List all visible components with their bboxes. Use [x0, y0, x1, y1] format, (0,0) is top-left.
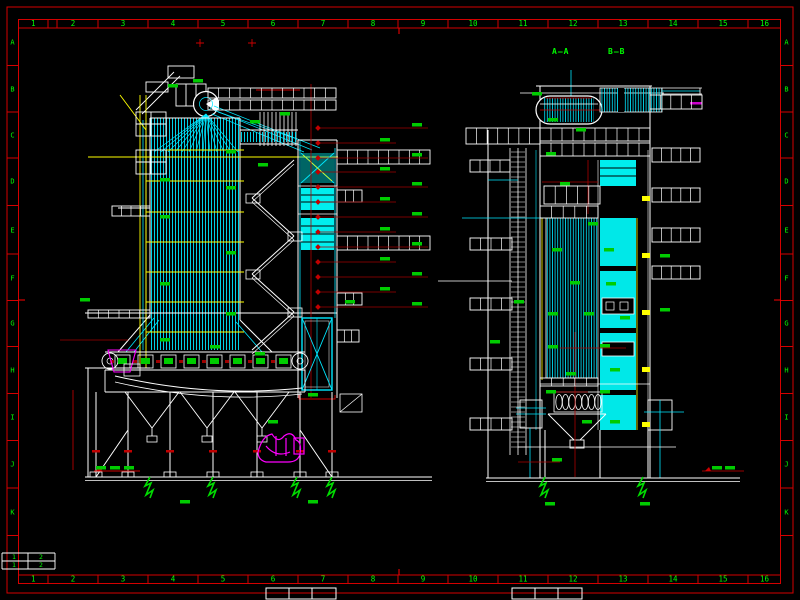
svg-text:2: 2: [71, 19, 76, 28]
support-columns: [90, 392, 338, 477]
convection-shaft: [298, 84, 337, 398]
svg-text:11: 11: [518, 19, 527, 28]
svg-text:6: 6: [271, 575, 276, 584]
loop-ellipses: [556, 395, 601, 410]
right-section-view: [438, 70, 744, 482]
svg-text:3: 3: [121, 19, 126, 28]
svg-text:C: C: [10, 132, 14, 140]
svg-text:8: 8: [371, 575, 376, 584]
centerline-marks: [196, 39, 256, 47]
svg-text:J: J: [10, 461, 14, 469]
svg-text:11: 11: [518, 575, 527, 584]
svg-text:7: 7: [321, 19, 326, 28]
steam-drum: [194, 92, 219, 117]
svg-text:13: 13: [618, 575, 627, 584]
corner-zone-table: [2, 553, 55, 569]
svg-text:G: G: [10, 320, 14, 328]
svg-text:1: 1: [12, 561, 16, 569]
svg-text:B: B: [784, 86, 788, 94]
svg-text:4: 4: [171, 575, 176, 584]
heating-surfaces: [600, 160, 637, 430]
yellow-clips: [642, 196, 650, 427]
svg-text:E: E: [784, 227, 788, 235]
svg-text:I: I: [784, 414, 788, 422]
section-label-bb: B—B: [608, 47, 625, 56]
platen-band: [600, 88, 702, 112]
grate-cells: [110, 355, 291, 368]
svg-text:7: 7: [321, 575, 326, 584]
svg-text:I: I: [10, 414, 14, 422]
svg-text:G: G: [784, 320, 788, 328]
svg-text:15: 15: [718, 19, 727, 28]
furnace: [118, 118, 272, 352]
drum-section: [536, 96, 602, 124]
inner-border: [19, 20, 781, 584]
svg-text:10: 10: [468, 575, 478, 584]
svg-text:1: 1: [31, 19, 36, 28]
svg-text:K: K: [784, 509, 789, 517]
crossover-duct: [240, 130, 298, 144]
svg-text:H: H: [10, 367, 14, 375]
svg-text:1: 1: [31, 575, 36, 584]
svg-text:F: F: [10, 275, 14, 283]
svg-text:D: D: [784, 178, 788, 186]
svg-text:J: J: [784, 461, 788, 469]
red-leader-lines: [315, 123, 428, 310]
ruler-labels: 1122334455667788991010111112121313141415…: [7, 19, 793, 584]
svg-text:2: 2: [39, 553, 43, 561]
rv-hopper: [548, 414, 606, 448]
svg-text:4: 4: [171, 19, 176, 28]
svg-text:14: 14: [668, 575, 678, 584]
svg-text:6: 6: [271, 19, 276, 28]
air-heater: [299, 318, 362, 412]
boiler-drawing: 1122334455667788991010111112121313141415…: [0, 0, 800, 600]
center-ticks: [19, 28, 781, 575]
svg-text:12: 12: [568, 575, 577, 584]
svg-text:B: B: [10, 86, 14, 94]
svg-text:3: 3: [121, 575, 126, 584]
svg-text:12: 12: [568, 19, 577, 28]
zone-notch: [19, 20, 58, 29]
ash-hoppers: [125, 392, 289, 442]
section-label-aa: A—A: [552, 47, 569, 56]
svg-text:10: 10: [468, 19, 478, 28]
svg-text:16: 16: [760, 575, 770, 584]
svg-text:1: 1: [12, 553, 16, 561]
long-links: [438, 180, 556, 281]
svg-text:16: 16: [760, 19, 770, 28]
svg-text:D: D: [10, 178, 14, 186]
cad-canvas: 1122334455667788991010111112121313141415…: [0, 0, 800, 600]
svg-text:13: 13: [618, 19, 627, 28]
svg-text:5: 5: [221, 575, 226, 584]
svg-text:A: A: [784, 39, 789, 47]
svg-text:8: 8: [371, 19, 376, 28]
grate: [102, 352, 308, 397]
svg-text:C: C: [784, 132, 788, 140]
svg-text:H: H: [784, 367, 788, 375]
slag-remover: [258, 434, 304, 462]
svg-text:2: 2: [39, 561, 43, 569]
svg-text:5: 5: [221, 19, 226, 28]
svg-text:9: 9: [421, 19, 426, 28]
stair-zigzag: [246, 160, 302, 354]
svg-text:K: K: [10, 509, 15, 517]
svg-text:F: F: [784, 275, 788, 283]
left-elevation-view: [60, 39, 432, 481]
svg-text:2: 2: [71, 575, 76, 584]
svg-text:9: 9: [421, 575, 426, 584]
svg-text:A: A: [10, 39, 15, 47]
svg-text:15: 15: [718, 575, 727, 584]
svg-text:E: E: [10, 227, 14, 235]
svg-text:14: 14: [668, 19, 678, 28]
